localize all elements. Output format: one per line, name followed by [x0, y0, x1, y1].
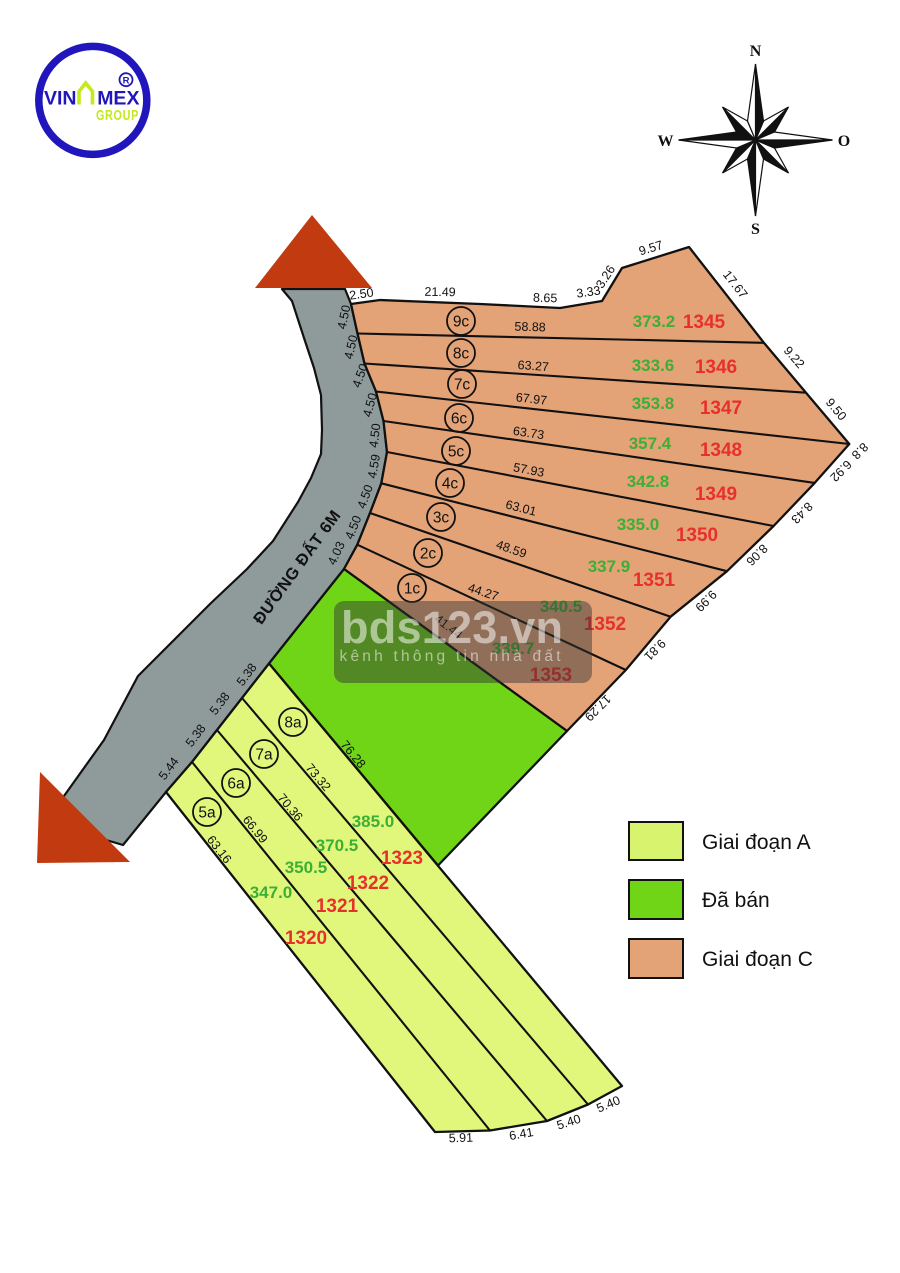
svg-text:347.0: 347.0 — [250, 883, 293, 902]
svg-text:58.88: 58.88 — [514, 320, 546, 335]
svg-text:373.2: 373.2 — [633, 312, 676, 331]
svg-text:333.6: 333.6 — [632, 356, 675, 375]
svg-text:21.49: 21.49 — [424, 285, 456, 300]
svg-text:1347: 1347 — [700, 398, 742, 419]
svg-text:4.50: 4.50 — [367, 423, 384, 449]
svg-text:1345: 1345 — [683, 312, 726, 333]
svg-text:350.5: 350.5 — [285, 858, 328, 877]
svg-text:1350: 1350 — [676, 525, 718, 546]
svg-text:1320: 1320 — [285, 928, 327, 949]
svg-text:Giai đoạn C: Giai đoạn C — [702, 948, 813, 971]
svg-text:1349: 1349 — [695, 484, 737, 505]
svg-text:1c: 1c — [404, 581, 421, 598]
svg-text:5c: 5c — [448, 444, 465, 461]
svg-text:342.8: 342.8 — [627, 472, 670, 491]
svg-text:335.0: 335.0 — [617, 515, 660, 534]
svg-text:353.8: 353.8 — [632, 394, 675, 413]
svg-text:7c: 7c — [454, 377, 471, 394]
svg-text:Giai đoạn A: Giai đoạn A — [702, 831, 811, 854]
svg-text:6c: 6c — [451, 411, 468, 428]
svg-text:2c: 2c — [420, 546, 437, 563]
svg-text:N: N — [750, 43, 762, 60]
svg-text:1322: 1322 — [347, 873, 389, 894]
svg-text:385.0: 385.0 — [352, 812, 395, 831]
svg-text:GROUP: GROUP — [96, 106, 139, 123]
svg-text:1348: 1348 — [700, 440, 742, 461]
svg-text:9c: 9c — [453, 314, 470, 331]
svg-text:63.27: 63.27 — [517, 358, 549, 374]
svg-text:R: R — [123, 76, 130, 87]
svg-text:1323: 1323 — [381, 848, 423, 869]
svg-text:5a: 5a — [198, 805, 216, 822]
svg-text:370.5: 370.5 — [316, 836, 359, 855]
svg-text:1321: 1321 — [316, 896, 359, 917]
svg-text:3c: 3c — [433, 510, 450, 527]
svg-text:bds123.vn: bds123.vn — [341, 602, 563, 653]
svg-text:Đã bán: Đã bán — [702, 889, 770, 912]
svg-text:357.4: 357.4 — [629, 434, 672, 453]
svg-text:O: O — [838, 133, 850, 150]
svg-text:VIN: VIN — [44, 88, 77, 110]
svg-text:1346: 1346 — [695, 357, 737, 378]
svg-text:337.9: 337.9 — [588, 557, 631, 576]
svg-text:7a: 7a — [255, 747, 273, 764]
svg-text:5.91: 5.91 — [448, 1131, 473, 1146]
svg-text:8c: 8c — [453, 346, 470, 363]
svg-text:6a: 6a — [227, 776, 245, 793]
svg-text:8a: 8a — [284, 715, 302, 732]
svg-text:8.65: 8.65 — [533, 291, 558, 306]
svg-text:S: S — [751, 221, 760, 238]
svg-text:4c: 4c — [442, 476, 459, 493]
svg-text:1351: 1351 — [633, 570, 676, 591]
svg-text:W: W — [658, 133, 674, 150]
